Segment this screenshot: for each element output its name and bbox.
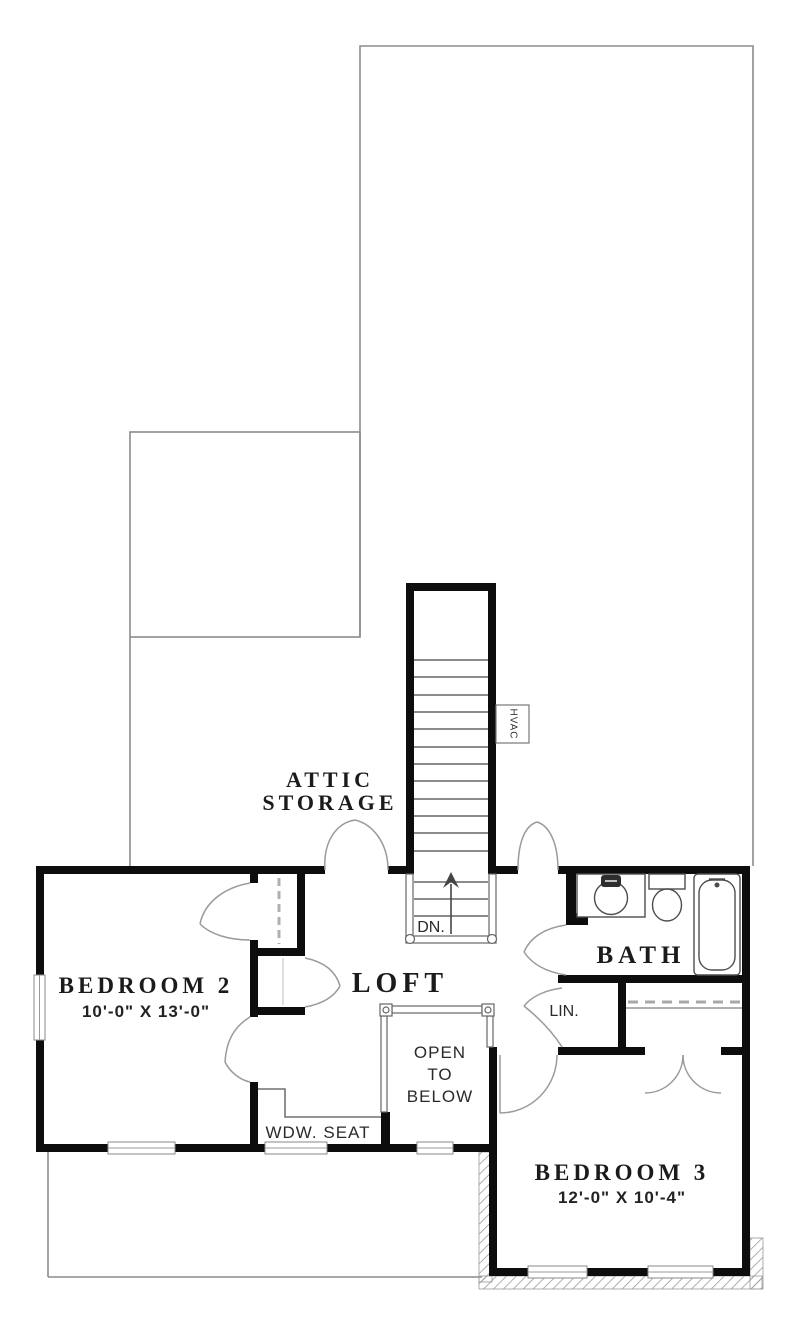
floor-plan-page: HVAC [0,0,800,1324]
door-arc-attic-left [325,820,388,870]
door-arc-hall-closet [305,958,340,1007]
window-seat-label: WDW. SEAT [265,1123,370,1142]
hvac-label: HVAC [507,708,518,739]
stairs-down-label: DN. [417,919,445,936]
room-label-attic-2: STORAGE [262,790,397,815]
open-to-below-label-2: TO [427,1065,452,1084]
window [417,1142,453,1154]
door-arc-bedroom2-closet [200,883,250,940]
room-label-bedroom-3: BEDROOM 3 [535,1160,710,1185]
window-seat-outline [258,1089,381,1117]
room-label-attic: ATTIC [286,767,374,792]
door-arc-bedroom3-entry [500,1055,557,1113]
door-arc-attic-right [518,822,558,870]
window [34,975,45,1040]
window [108,1142,175,1154]
room-label-bath: BATH [597,942,686,969]
open-to-below-label-1: OPEN [414,1043,466,1062]
room-dims-bedroom-2: 10'-0" X 13'-0" [82,1002,210,1021]
open-to-below-label-3: BELOW [407,1087,473,1106]
bathtub [694,874,740,975]
room-label-bedroom-2: BEDROOM 2 [59,973,234,998]
window [528,1266,587,1278]
toilet [649,874,685,921]
vanity-sink [577,874,645,917]
floor-plan-drawing: HVAC [0,0,800,1324]
door-arc-bath [524,925,566,975]
door-arcs-bedroom3-closet-double [645,1055,721,1093]
room-dims-bedroom-3: 12'-0" X 10'-4" [558,1188,686,1207]
room-label-loft: LOFT [352,968,448,999]
room-label-linen: LIN. [549,1003,578,1020]
window [265,1142,327,1154]
door-arc-bedroom2-entry [225,1017,250,1082]
hvac-box: HVAC [496,705,529,743]
window [648,1266,713,1278]
stair-treads-upper [414,660,488,851]
